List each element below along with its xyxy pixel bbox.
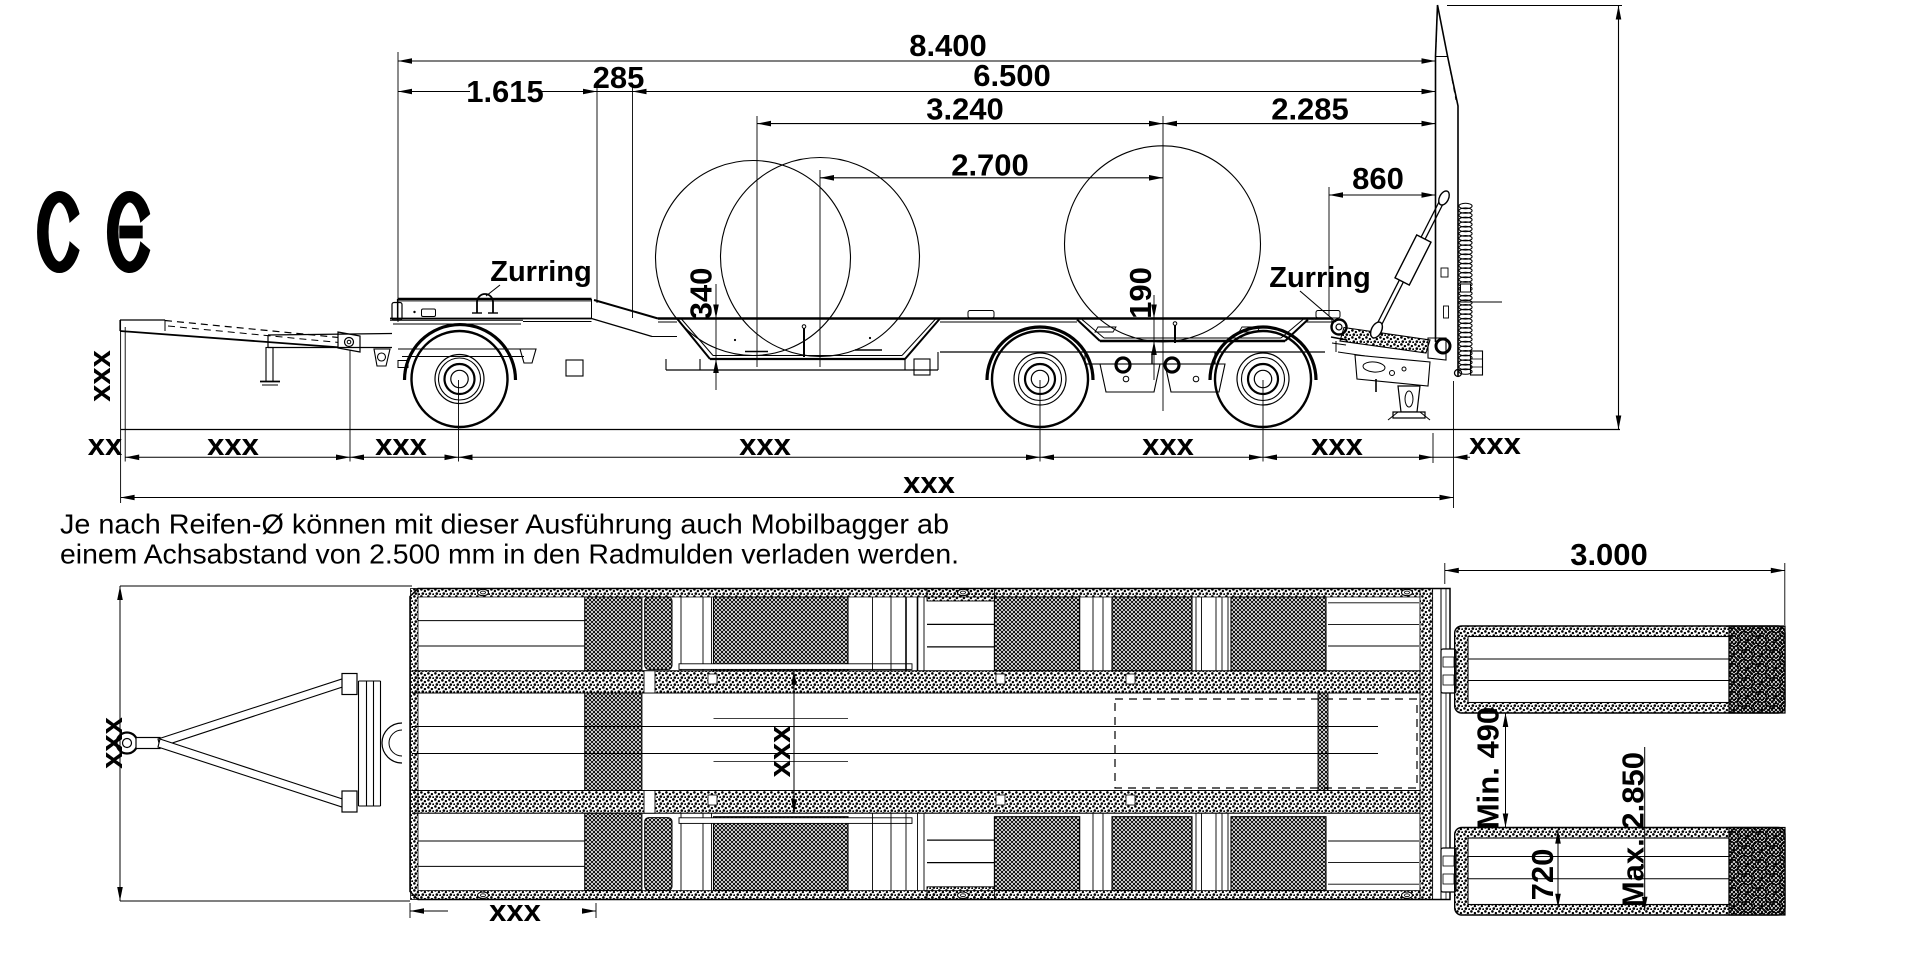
svg-text:xxx: xxx [94,716,129,768]
svg-text:3.240: 3.240 [926,92,1004,127]
svg-text:190: 190 [1123,267,1158,319]
svg-text:xxx: xxx [375,427,427,462]
svg-text:xxx: xxx [1469,426,1521,461]
svg-text:xxx: xxx [82,349,117,401]
svg-text:1.615: 1.615 [466,74,544,109]
svg-text:einem Achsabstand von 2.500 mm: einem Achsabstand von 2.500 mm in den Ra… [60,538,959,569]
svg-text:720: 720 [1525,849,1560,901]
svg-text:xxx: xxx [1142,427,1194,462]
svg-text:xxx: xxx [739,427,791,462]
svg-text:xxx: xxx [489,893,541,928]
svg-text:xxx: xxx [1311,427,1363,462]
svg-text:xx: xx [88,427,123,462]
svg-text:6.500: 6.500 [973,58,1051,93]
svg-text:340: 340 [684,268,719,320]
svg-text:xxx: xxx [762,725,797,777]
svg-text:3.000: 3.000 [1570,537,1648,572]
svg-text:Zurring: Zurring [490,256,592,288]
svg-text:xxx: xxx [903,465,955,500]
svg-text:860: 860 [1352,161,1404,196]
svg-text:285: 285 [593,60,645,95]
svg-text:2.700: 2.700 [951,148,1029,183]
svg-text:xxx: xxx [207,427,259,462]
svg-text:Zurring: Zurring [1269,262,1371,294]
svg-text:Max. 2.850: Max. 2.850 [1616,752,1651,907]
svg-text:Min. 490: Min. 490 [1471,707,1506,829]
svg-text:Je nach Reifen-Ø können mit di: Je nach Reifen-Ø können mit dieser Ausfü… [60,508,949,539]
svg-text:2.285: 2.285 [1271,92,1349,127]
